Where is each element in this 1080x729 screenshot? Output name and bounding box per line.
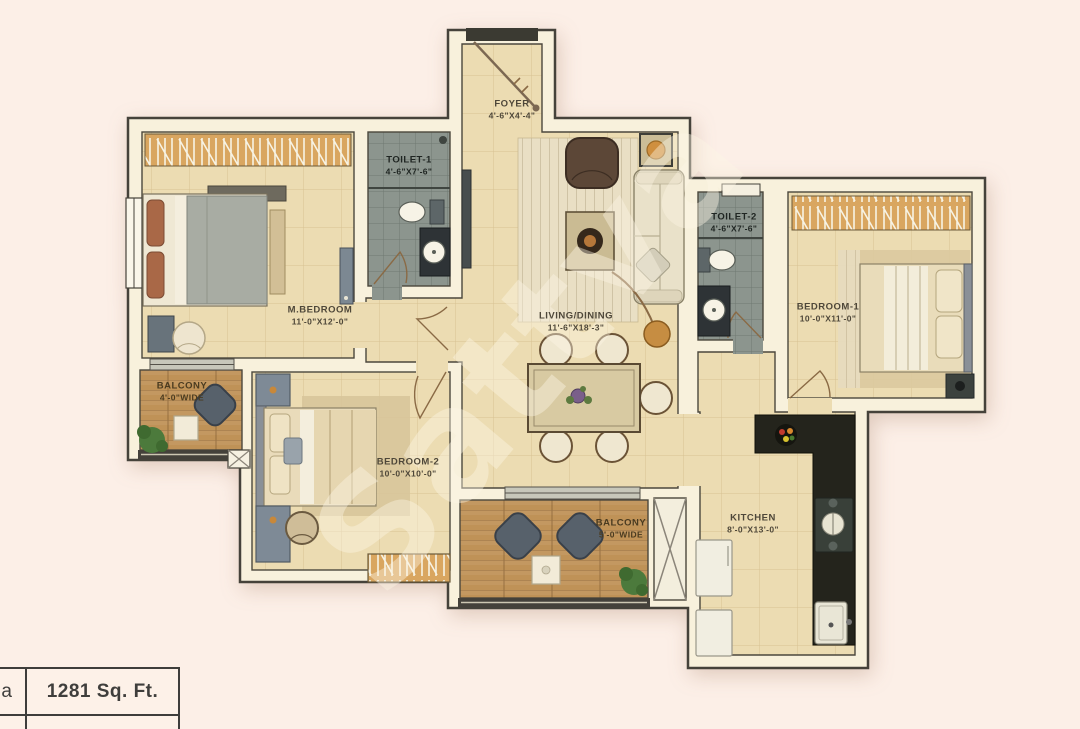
bedroom2-window-blind bbox=[368, 554, 450, 582]
shower-head bbox=[439, 136, 447, 144]
bedroom1-wardrobe bbox=[792, 196, 970, 230]
bedroom2-nightstand-bottom bbox=[256, 506, 290, 562]
bedroom1-nightstand bbox=[946, 374, 974, 398]
bedroom2-bed bbox=[256, 406, 376, 506]
tv-panel bbox=[462, 170, 471, 268]
sofa bbox=[634, 170, 684, 304]
side-table bbox=[640, 134, 672, 166]
coffee-table bbox=[566, 212, 614, 270]
mbedroom-wardrobe bbox=[145, 134, 351, 166]
bedroom2-chair bbox=[286, 512, 318, 544]
bedroom1-bed bbox=[860, 264, 972, 372]
mbedroom-bed bbox=[143, 194, 267, 306]
mbedroom-dresser bbox=[148, 316, 174, 352]
area-label-cell: a bbox=[0, 669, 27, 714]
balcony1-table bbox=[174, 416, 198, 440]
armchair bbox=[566, 138, 618, 188]
small-shaft-box bbox=[228, 450, 250, 468]
kitchen-sink bbox=[815, 602, 852, 644]
hob bbox=[815, 498, 853, 552]
area-table-row-2 bbox=[0, 714, 178, 729]
refrigerator bbox=[696, 540, 732, 596]
mbedroom-bench bbox=[270, 210, 285, 294]
toilet2-wc bbox=[698, 248, 735, 272]
toilet1-vanity bbox=[420, 228, 450, 276]
fruit-bowl bbox=[775, 424, 797, 446]
washing-machine bbox=[696, 610, 732, 656]
floorplan-drawing bbox=[0, 0, 1080, 729]
entrance-threshold bbox=[466, 28, 538, 41]
mbedroom-stool bbox=[173, 322, 205, 354]
area-table-row: a 1281 Sq. Ft. bbox=[0, 669, 178, 714]
area-value-cell: 1281 Sq. Ft. bbox=[27, 669, 178, 714]
mbedroom-door-leaf bbox=[340, 248, 353, 304]
area-table: a 1281 Sq. Ft. bbox=[0, 667, 180, 729]
toilet2-shower-tray bbox=[722, 184, 760, 196]
toilet2-vanity bbox=[698, 286, 730, 336]
floorplan-page: Sattva M.BEDROOM 11'-0"X12'-0" TOILET-1 … bbox=[0, 0, 1080, 729]
